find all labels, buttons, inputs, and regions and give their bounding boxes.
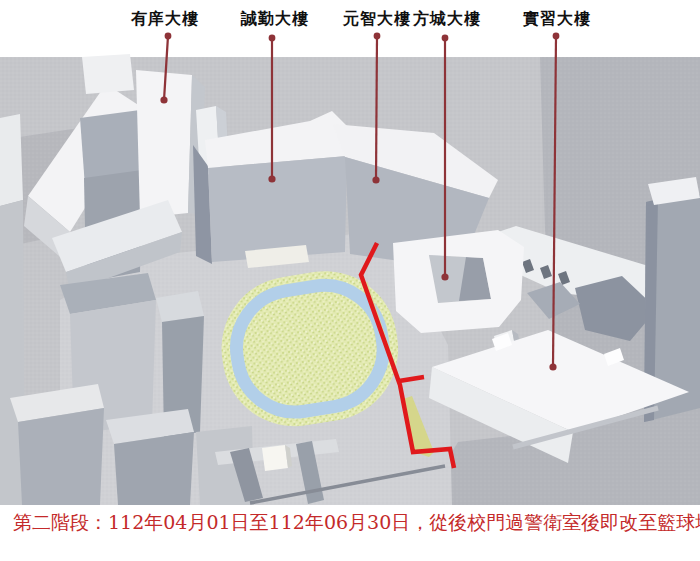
leader-line-yuanzhi (376, 36, 377, 180)
building-label-shixi: 實習大樓 (523, 9, 591, 30)
building-label-chengqin: 誠勤大樓 (241, 9, 309, 30)
campus-route-map-page: 有庠大樓 誠勤大樓 元智大樓 方城大樓 實習大樓 第二階段：112年04月01日… (0, 0, 700, 561)
stage-caption: 第二階段：112年04月01日至112年06月30日，從後校門過警衛室後即改至籃… (13, 510, 700, 536)
building-label-yuanzhi: 元智大樓 (343, 9, 411, 30)
building-label-fangcheng: 方城大樓 (413, 9, 481, 30)
campus-3d-map (0, 0, 700, 561)
building-label-youxiang: 有庠大樓 (131, 9, 199, 30)
